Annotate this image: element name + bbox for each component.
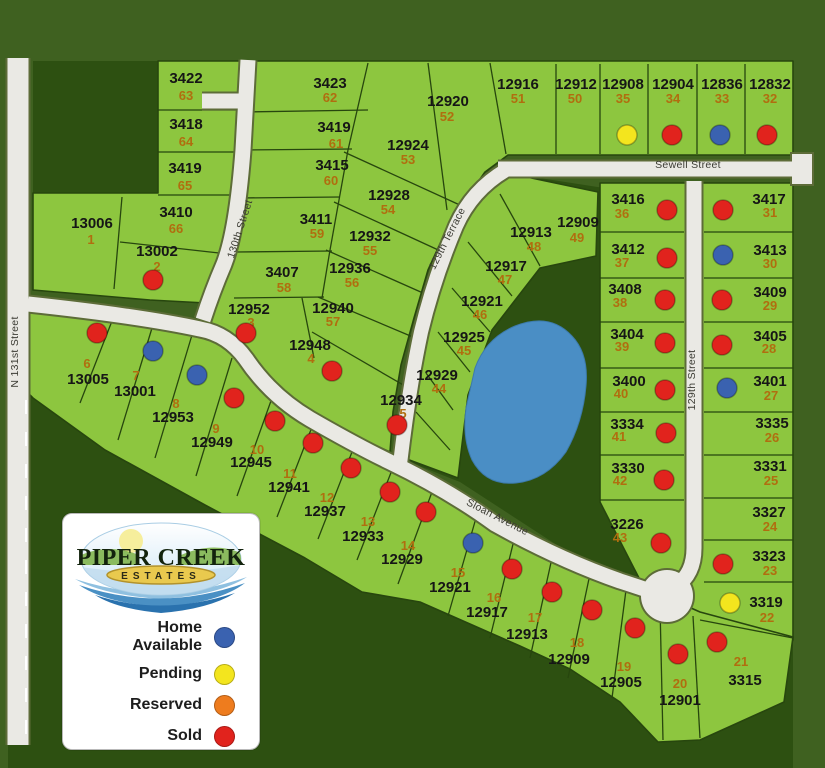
available-status-dot [717, 378, 737, 398]
lot-number: 8 [172, 396, 179, 411]
lot-address: 3319 [749, 594, 782, 611]
sold-status-dot [502, 559, 522, 579]
lot-number: 36 [615, 206, 629, 221]
available-dot [214, 627, 235, 648]
legend-label-reserved: Reserved [100, 696, 202, 714]
pending-dot [214, 664, 235, 685]
lot-number: 59 [310, 226, 324, 241]
sold-status-dot [713, 200, 733, 220]
lot-number: 19 [617, 659, 631, 674]
sold-status-dot [387, 415, 407, 435]
sold-status-dot [236, 323, 256, 343]
lot-number: 9 [212, 421, 219, 436]
lot-number: 4 [307, 351, 315, 366]
sold-status-dot [87, 323, 107, 343]
lot-number: 63 [179, 88, 193, 103]
lot-number: 46 [473, 307, 487, 322]
lot-address: 12941 [268, 479, 310, 496]
lot-number: 50 [568, 91, 582, 106]
lot-address: 3407 [265, 264, 298, 281]
available-status-dot [710, 125, 730, 145]
sold-status-dot [712, 290, 732, 310]
unplatted-area [33, 61, 158, 193]
lot-address: 13006 [71, 215, 113, 232]
lot-number: 38 [613, 295, 627, 310]
legend-label-sold: Sold [100, 727, 202, 745]
lot-number: 44 [432, 381, 447, 396]
lot-number: 7 [132, 368, 139, 383]
lot-number: 26 [765, 430, 779, 445]
lot-number: 24 [763, 519, 778, 534]
lot-address: 3315 [728, 672, 761, 689]
available-status-dot [463, 533, 483, 553]
lot-number: 61 [329, 136, 343, 151]
lot-number: 42 [613, 473, 627, 488]
lot-number: 51 [511, 91, 525, 106]
sold-status-dot [322, 361, 342, 381]
lot-number: 43 [613, 530, 627, 545]
logo-subtitle: ESTATES [121, 571, 201, 582]
sold-status-dot [655, 290, 675, 310]
lot-number: 56 [345, 275, 359, 290]
lot-number: 10 [250, 442, 264, 457]
lot-number: 29 [763, 298, 777, 313]
lot-number: 30 [763, 256, 777, 271]
legend-card: PIPER CREEK ESTATES Home Available Pendi… [62, 513, 260, 750]
available-status-dot [187, 365, 207, 385]
lot-address: 13002 [136, 243, 178, 260]
lot-number: 1 [87, 232, 94, 247]
lot-number: 48 [527, 239, 541, 254]
available-status-dot [143, 341, 163, 361]
lot-address: 13001 [114, 383, 156, 400]
lot-address: 12953 [152, 409, 194, 426]
sold-status-dot [380, 482, 400, 502]
sold-status-dot [662, 125, 682, 145]
lot-number: 20 [673, 676, 687, 691]
lot-number: 35 [616, 91, 630, 106]
plat-map-screenshot: N 131st Street130th StreetSewell Street1… [0, 0, 825, 768]
lot-address: 12909 [557, 214, 599, 231]
sold-status-dot [265, 411, 285, 431]
lot-number: 14 [401, 538, 416, 553]
cul-de-sac [641, 570, 693, 622]
lot-number: 25 [764, 473, 778, 488]
sold-status-dot [654, 470, 674, 490]
lot-number: 17 [528, 610, 542, 625]
lot-number: 40 [614, 386, 628, 401]
lot-address: 3418 [169, 116, 202, 133]
lot-number: 49 [570, 230, 584, 245]
sold-status-dot [143, 270, 163, 290]
pending-status-dot [720, 593, 740, 613]
sold-status-dot [656, 423, 676, 443]
sold-status-dot [655, 380, 675, 400]
lot-address: 12905 [600, 674, 642, 691]
lot-number: 34 [666, 91, 681, 106]
lot-number: 66 [169, 221, 183, 236]
lot-number: 62 [323, 90, 337, 105]
lot-number: 45 [457, 343, 471, 358]
lot-number: 47 [498, 272, 512, 287]
lot-address: 12949 [191, 434, 233, 451]
sold-status-dot [757, 125, 777, 145]
lot-address: 12937 [304, 503, 346, 520]
street-label: N 131st Street [9, 316, 21, 387]
sold-status-dot [712, 335, 732, 355]
lot-address: 12933 [342, 528, 384, 545]
sold-status-dot [657, 200, 677, 220]
lot-number: 60 [324, 173, 338, 188]
lot-address: 12913 [506, 626, 548, 643]
legend-item-sold: Sold [63, 726, 259, 747]
sold-status-dot [655, 333, 675, 353]
lot-number: 21 [734, 654, 748, 669]
lot-number: 58 [277, 280, 291, 295]
lot-number: 12 [320, 490, 334, 505]
lot-number: 27 [764, 388, 778, 403]
legend-list: Home Available Pending Reserved Sold [63, 619, 259, 747]
sold-dot [214, 726, 235, 747]
lot-number: 54 [381, 202, 396, 217]
lot-address: 12921 [429, 579, 471, 596]
legend-label-available: Home Available [100, 619, 202, 656]
sold-status-dot [625, 618, 645, 638]
street-label: Sewell Street [655, 159, 721, 171]
community-logo: PIPER CREEK ESTATES [69, 521, 253, 617]
sold-status-dot [713, 554, 733, 574]
lot-number: 65 [178, 178, 192, 193]
sold-status-dot [707, 632, 727, 652]
sold-status-dot [668, 644, 688, 664]
legend-label-pending: Pending [100, 665, 202, 683]
sold-status-dot [582, 600, 602, 620]
lot-number: 53 [401, 152, 415, 167]
lot-number: 57 [326, 314, 340, 329]
available-status-dot [713, 245, 733, 265]
lot-number: 64 [179, 134, 194, 149]
lot-number: 41 [612, 429, 626, 444]
lot-address: 12917 [466, 604, 508, 621]
legend-item-available: Home Available [63, 619, 259, 656]
lot-address: 13005 [67, 371, 109, 388]
lot-address: 12909 [548, 651, 590, 668]
lot-number: 13 [361, 514, 375, 529]
lot-address: 12920 [427, 93, 469, 110]
lot-number: 16 [487, 590, 501, 605]
sold-status-dot [224, 388, 244, 408]
lot-number: 55 [363, 243, 377, 258]
lot-number: 6 [83, 356, 90, 371]
lot-number: 37 [615, 255, 629, 270]
lot-number: 31 [763, 205, 777, 220]
lot-address: 3410 [159, 204, 192, 221]
lot-address: 3422 [169, 70, 202, 87]
lot-number: 28 [762, 341, 776, 356]
sold-status-dot [542, 582, 562, 602]
legend-item-pending: Pending [63, 664, 259, 685]
lot-address: 12901 [659, 692, 701, 709]
sold-status-dot [341, 458, 361, 478]
reserved-dot [214, 695, 235, 716]
lot-number: 22 [760, 610, 774, 625]
sold-status-dot [657, 248, 677, 268]
sold-status-dot [416, 502, 436, 522]
lot-address: 3419 [317, 119, 350, 136]
street-label: 129th Street [686, 350, 698, 411]
lot-address: 3415 [315, 157, 348, 174]
lot-number: 18 [570, 635, 584, 650]
sold-status-dot [303, 433, 323, 453]
lot-number: 15 [451, 565, 465, 580]
pending-status-dot [617, 125, 637, 145]
lot-number: 33 [715, 91, 729, 106]
legend-item-reserved: Reserved [63, 695, 259, 716]
lot-number: 23 [763, 563, 777, 578]
lot-number: 32 [763, 91, 777, 106]
sold-status-dot [651, 533, 671, 553]
lot-number: 52 [440, 109, 454, 124]
lot-address: 3419 [168, 160, 201, 177]
lot-number: 39 [615, 339, 629, 354]
lot-number: 11 [283, 466, 297, 481]
lot-address: 12929 [381, 551, 423, 568]
